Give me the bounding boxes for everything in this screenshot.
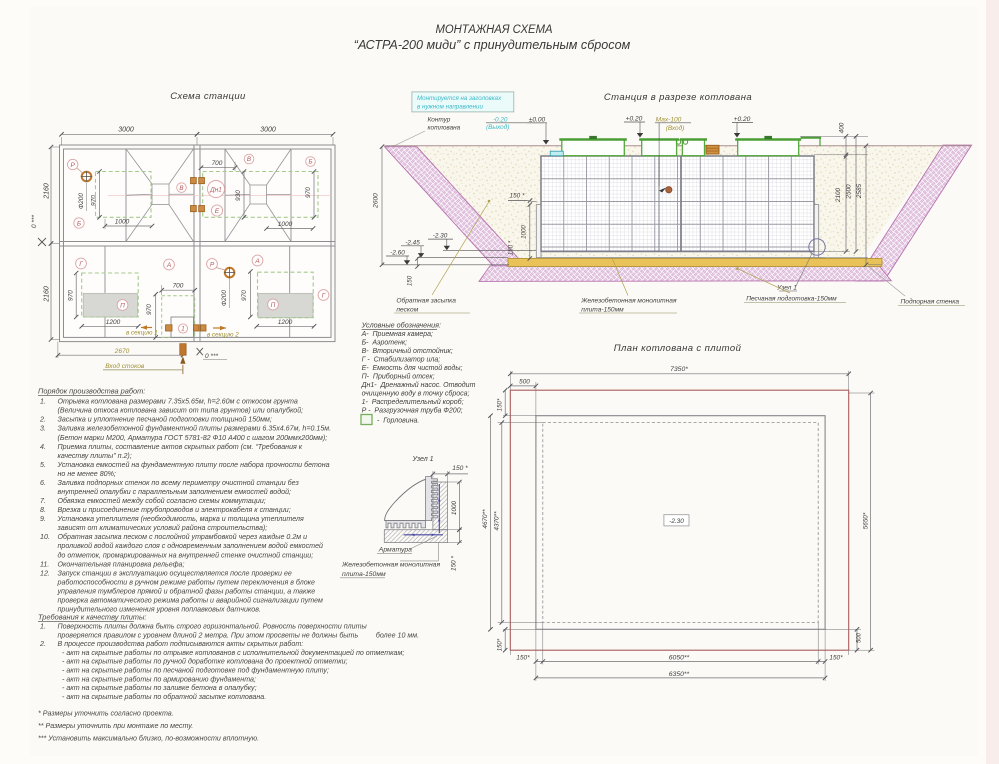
svg-text:6050**: 6050** — [669, 654, 690, 661]
svg-text:Железобетонная монолитная: Железобетонная монолитная — [580, 297, 677, 305]
svg-text:4370**: 4370** — [494, 511, 501, 531]
svg-text:Подпорная стенка: Подпорная стенка — [901, 298, 960, 306]
svg-text:6.: 6. — [40, 479, 46, 487]
svg-text:0 ***: 0 *** — [31, 215, 38, 228]
svg-text:Железобетонная монолитная: Железобетонная монолитная — [341, 561, 440, 569]
svg-text:Установка емкостей на фундамен: Установка емкостей на фундаментную плиту… — [57, 461, 330, 469]
svg-text:Дн1- Дренажный насос. Отводит: Дн1- Дренажный насос. Отводит — [361, 381, 476, 389]
svg-text:Арматура: Арматура — [378, 547, 412, 554]
svg-text:6350**: 6350** — [669, 671, 690, 678]
svg-text:150*: 150* — [498, 638, 504, 651]
svg-text:(Вход): (Вход) — [666, 124, 685, 132]
svg-text:А: А — [254, 258, 259, 265]
svg-text:Поверхность плиты должна быть: Поверхность плиты должна быть строго гор… — [58, 623, 368, 631]
svg-text:Отрывка котлована размерами 7.: Отрывка котлована размерами 7.35х5.65м, … — [58, 398, 298, 406]
svg-text:Заливка подпорных стенок по вс: Заливка подпорных стенок по всему периме… — [58, 479, 300, 487]
svg-text:10.: 10. — [40, 533, 50, 541]
svg-text:План котлована с плитой: План котлована с плитой — [614, 343, 742, 354]
svg-text:П- Приборный отсек;: П- Приборный отсек; — [362, 373, 435, 381]
svg-text:МОНТАЖНАЯ СХЕМА: МОНТАЖНАЯ СХЕМА — [436, 22, 553, 36]
svg-text:Р: Р — [71, 162, 76, 169]
svg-text:А: А — [166, 262, 171, 269]
svg-text:2100: 2100 — [835, 187, 842, 203]
svg-text:Обратная засыпка: Обратная засыпка — [396, 297, 456, 305]
svg-text:11.: 11. — [40, 560, 49, 568]
svg-text:150*: 150* — [497, 398, 504, 411]
svg-text:700: 700 — [173, 283, 184, 290]
svg-text:(Выход): (Выход) — [486, 123, 509, 131]
svg-text:песком: песком — [396, 307, 418, 314]
svg-text:150 *: 150 * — [508, 240, 515, 255]
svg-text:5.: 5. — [40, 461, 46, 469]
svg-text:1000: 1000 — [451, 500, 458, 515]
svg-text:2160: 2160 — [44, 286, 51, 303]
svg-text:0 ***: 0 *** — [205, 353, 218, 360]
svg-text:Р: Р — [210, 261, 215, 268]
svg-text:970: 970 — [91, 195, 98, 206]
svg-text:А- Приемная камера;: А- Приемная камера; — [361, 331, 433, 338]
svg-text:В процессе производства работ: В процессе производства работ подписываю… — [58, 640, 304, 648]
svg-text:2600: 2600 — [373, 193, 380, 209]
svg-text:1.: 1. — [40, 623, 46, 631]
svg-text:1000: 1000 — [115, 219, 130, 226]
svg-text:150: 150 — [407, 275, 414, 286]
svg-text:+0.20: +0.20 — [626, 116, 643, 123]
svg-text:500: 500 — [857, 632, 863, 643]
svg-text:плита-150мм: плита-150мм — [342, 571, 386, 578]
svg-text:проверка автоматического режим: проверка автоматического режима работы и… — [58, 596, 324, 604]
svg-text:3.: 3. — [40, 425, 46, 433]
svg-text:Установка утеплителя (необходи: Установка утеплителя (необходимость, мар… — [57, 515, 304, 523]
svg-text:плита-150мм: плита-150мм — [581, 307, 624, 314]
svg-text:930: 930 — [235, 190, 242, 201]
svg-text:*** Установить максимально бли: *** Установить максимально близко, по-во… — [38, 735, 259, 743]
svg-text:Требования к качеству плиты:: Требования к качеству плиты: — [38, 613, 146, 622]
svg-text:970: 970 — [146, 304, 153, 315]
svg-text:но не менее 80%;: но не менее 80%; — [58, 470, 116, 478]
svg-text:в секцию 1: в секцию 1 — [126, 330, 158, 337]
svg-text:500: 500 — [519, 378, 530, 385]
svg-text:150 *: 150 * — [510, 193, 525, 200]
svg-text:1.: 1. — [40, 398, 46, 406]
svg-text:Схема станции: Схема станции — [170, 91, 246, 102]
svg-text:-2.60: -2.60 — [390, 249, 405, 256]
svg-text:4.: 4. — [40, 443, 46, 451]
svg-text:1200: 1200 — [106, 319, 121, 326]
svg-text:Р - Разгрузочная труба Ф200;: Р - Разгрузочная труба Ф200; — [362, 407, 463, 415]
svg-text:внутренней опалубки с параллел: внутренней опалубки с параллельным запол… — [58, 488, 292, 496]
svg-text:Г: Г — [79, 261, 83, 268]
svg-text:150*: 150* — [829, 654, 843, 661]
svg-text:8.: 8. — [40, 506, 46, 514]
svg-text:котлована: котлована — [428, 125, 461, 132]
svg-text:- акт на скрытые работы по пес: - акт на скрытые работы по песчаной подг… — [62, 667, 329, 675]
svg-text:Песчаная подготовка-150мм: Песчаная подготовка-150мм — [746, 295, 837, 303]
svg-text:Порядок производства работ:: Порядок производства работ: — [38, 387, 145, 396]
svg-text:- акт на скрытые работы по обр: - акт на скрытые работы по обратной засы… — [62, 693, 266, 701]
svg-text:Вход стоков: Вход стоков — [105, 362, 145, 370]
svg-text:970: 970 — [68, 290, 75, 301]
svg-text:12.: 12. — [40, 569, 50, 577]
svg-text:970: 970 — [241, 290, 248, 301]
svg-text:Г - Стабилизатор ила;: Г - Стабилизатор ила; — [362, 356, 441, 364]
svg-text:±0.00: ±0.00 — [529, 117, 546, 124]
svg-text:П: П — [271, 302, 276, 309]
svg-text:1- Распределительный короб;: 1- Распределительный короб; — [362, 398, 464, 406]
svg-text:3000: 3000 — [118, 127, 134, 134]
svg-text:Врезка и присоединение трубопр: Врезка и присоединение трубопроводов и э… — [58, 506, 291, 514]
svg-text:150*: 150* — [516, 654, 530, 661]
svg-text:** Размеры уточнить при монтаж: ** Размеры уточнить при монтаже по месту… — [38, 722, 193, 730]
svg-text:Приемка плиты, составление акт: Приемка плиты, составление актов скрытых… — [58, 443, 303, 451]
svg-text:Заливка железобетонной фундаме: Заливка железобетонной фундаментной плит… — [58, 425, 332, 433]
svg-text:1000: 1000 — [521, 225, 528, 239]
svg-text:+0.20: +0.20 — [734, 116, 751, 123]
svg-text:работоспособности в ручном реж: работоспособности в ручном режиме работы… — [57, 578, 316, 586]
svg-text:1200: 1200 — [278, 319, 293, 326]
svg-text:Узел 1: Узел 1 — [411, 456, 433, 463]
svg-text:Ф200: Ф200 — [221, 290, 228, 306]
svg-text:- акт на скрытые работы по отр: - акт на скрытые работы по отрывке котло… — [62, 649, 404, 657]
svg-text:(Величина откоса котлована зав: (Величина откоса котлована зависит от ти… — [58, 407, 304, 415]
svg-text:4670**: 4670** — [482, 509, 489, 529]
svg-text:7.: 7. — [40, 497, 46, 505]
svg-text:до отметок, промаркированных н: до отметок, промаркированных на внутренн… — [58, 551, 314, 559]
svg-text:Контур: Контур — [428, 117, 451, 124]
svg-text:проверяется правилом с уровнем: проверяется правилом с уровнем длиной 2 … — [58, 631, 420, 639]
svg-text:2670: 2670 — [114, 348, 130, 355]
svg-text:7350*: 7350* — [670, 366, 688, 373]
svg-text:-2.30: -2.30 — [433, 232, 448, 239]
svg-text:- акт на скрытые работы по руч: - акт на скрытые работы по ручной дорабо… — [62, 658, 348, 666]
svg-text:Обратная засыпка песком с посл: Обратная засыпка песком с послойной утра… — [58, 533, 308, 541]
svg-text:-2.30: -2.30 — [669, 518, 684, 525]
svg-text:Б: Б — [77, 220, 81, 227]
svg-text:Г: Г — [322, 292, 326, 299]
svg-text:9.: 9. — [40, 515, 46, 523]
svg-text:зависят от климатических услов: зависят от климатических условий района … — [57, 524, 268, 532]
svg-text:Б: Б — [308, 159, 312, 166]
svg-text:150 *: 150 * — [451, 556, 458, 571]
svg-text:проливкой водой каждого слоя с: проливкой водой каждого слоя с одновреме… — [58, 542, 324, 550]
svg-text:2160: 2160 — [44, 183, 51, 200]
svg-text:П: П — [120, 302, 125, 309]
svg-text:в нужном направлении: в нужном направлении — [417, 104, 483, 111]
svg-text:Ф200: Ф200 — [78, 193, 85, 209]
svg-text:Е- Емкость для чистой воды;: Е- Емкость для чистой воды; — [362, 364, 463, 372]
svg-text:управления тумблеров прямой и: управления тумблеров прямой и обратной ф… — [57, 587, 316, 595]
svg-text:Запуск станции в эксплуатацию: Запуск станции в эксплуатацию осуществля… — [58, 569, 292, 577]
svg-text:Обвязка емкостей между собой с: Обвязка емкостей между собой согласно сх… — [58, 497, 266, 505]
svg-text:400: 400 — [839, 122, 846, 133]
svg-text:2500: 2500 — [846, 184, 853, 200]
svg-text:* Размеры уточнить согласно пр: * Размеры уточнить согласно проекта. — [38, 710, 174, 718]
svg-text:- Горловина.: - Горловина. — [377, 418, 419, 425]
svg-text:- акт на скрытые работы по зал: - акт на скрытые работы по заливке бетон… — [62, 684, 257, 692]
svg-text:1: 1 — [181, 326, 184, 333]
svg-text:(Бетон марки М200, Арматура ГО: (Бетон марки М200, Арматура ГОСТ 5781-82… — [58, 434, 328, 442]
svg-text:3000: 3000 — [260, 127, 276, 134]
svg-text:Условные обозначения:: Условные обозначения: — [361, 321, 441, 330]
svg-text:- акт на скрытые работы по арм: - акт на скрытые работы по армированию ф… — [62, 675, 256, 683]
svg-text:очищенную воду в точку сброса;: очищенную воду в точку сброса; — [362, 390, 470, 398]
svg-text:5650*: 5650* — [863, 512, 870, 529]
svg-text:1000: 1000 — [278, 221, 293, 228]
svg-text:150 *: 150 * — [452, 465, 468, 472]
svg-text:Мах-100: Мах-100 — [656, 117, 682, 124]
svg-text:Е: Е — [215, 208, 220, 215]
svg-text:970: 970 — [305, 187, 312, 198]
svg-text:в секцию 2: в секцию 2 — [207, 332, 239, 339]
svg-text:2585: 2585 — [856, 183, 863, 199]
svg-text:Монтируется на заголовках: Монтируется на заголовках — [417, 95, 502, 102]
svg-text:-0.20: -0.20 — [493, 116, 508, 123]
svg-text:2.: 2. — [39, 416, 46, 424]
svg-text:Станция в разрезе котлована: Станция в разрезе котлована — [604, 92, 752, 103]
svg-text:Дн1: Дн1 — [209, 186, 222, 193]
svg-text:700: 700 — [212, 160, 223, 167]
svg-text:качеству плиты” п.2);: качеству плиты” п.2); — [58, 452, 132, 460]
svg-text:В: В — [247, 156, 251, 163]
svg-text:В- Вторичный отстойник;: В- Вторичный отстойник; — [362, 347, 453, 355]
svg-text:2.: 2. — [39, 640, 46, 648]
svg-text:-2.45: -2.45 — [405, 239, 420, 246]
svg-text:Б- Аэротенк;: Б- Аэротенк; — [362, 340, 408, 347]
svg-text:“АСТРА-200 миди” с принудитель: “АСТРА-200 миди” с принудительным сбросо… — [354, 38, 631, 52]
svg-text:Засыпка и уплотнение песчаной: Засыпка и уплотнение песчаной подготовки… — [58, 416, 272, 424]
svg-text:Окончательная планировка релье: Окончательная планировка рельефа; — [58, 560, 185, 568]
svg-text:В: В — [179, 185, 183, 192]
